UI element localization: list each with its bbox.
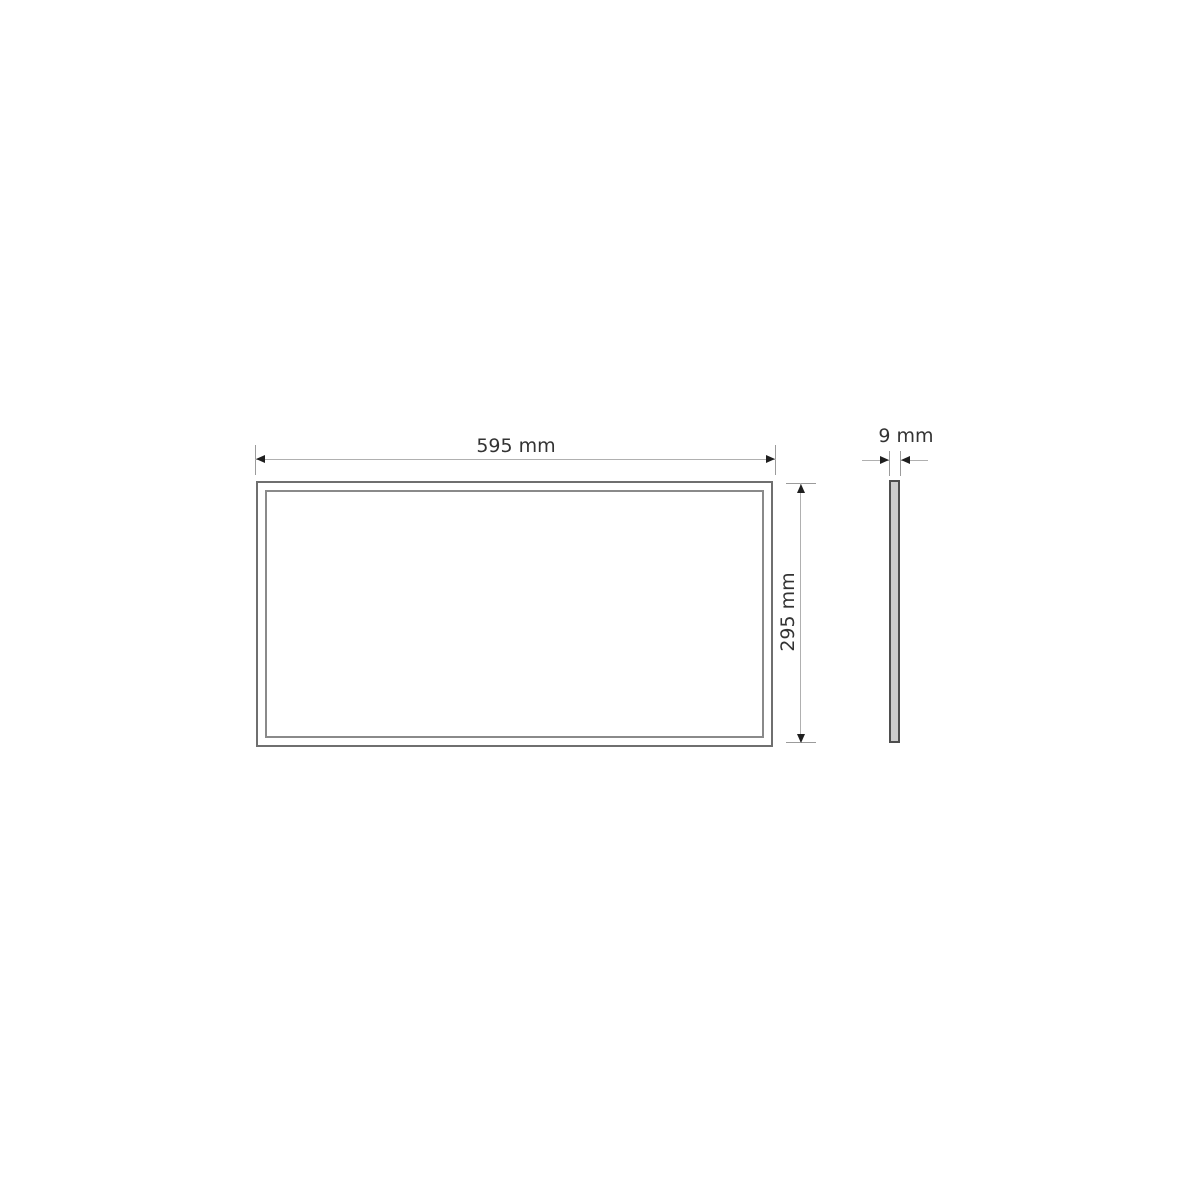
panel-front-view-inner-frame [265, 490, 764, 738]
panel-front-view-outer-frame [256, 481, 773, 747]
thickness-extension-line-left [889, 451, 890, 476]
width-dimension-line [255, 459, 776, 460]
thickness-arrow-inward-right-icon [901, 456, 910, 464]
height-dimension-line [800, 483, 801, 743]
width-arrow-right-icon [766, 455, 775, 463]
panel-side-profile [889, 480, 900, 743]
thickness-arrow-inward-left-icon [880, 456, 889, 464]
width-arrow-left-icon [256, 455, 265, 463]
height-arrow-down-icon [797, 734, 805, 743]
width-dimension-label: 595 mm [476, 435, 555, 457]
thickness-dimension-label: 9 mm [878, 425, 933, 447]
width-extension-line-right [775, 445, 776, 475]
dimension-drawing-canvas: 595 mm 295 mm 9 mm [0, 0, 1200, 1200]
height-arrow-up-icon [797, 484, 805, 493]
height-dimension-label: 295 mm [777, 572, 799, 651]
